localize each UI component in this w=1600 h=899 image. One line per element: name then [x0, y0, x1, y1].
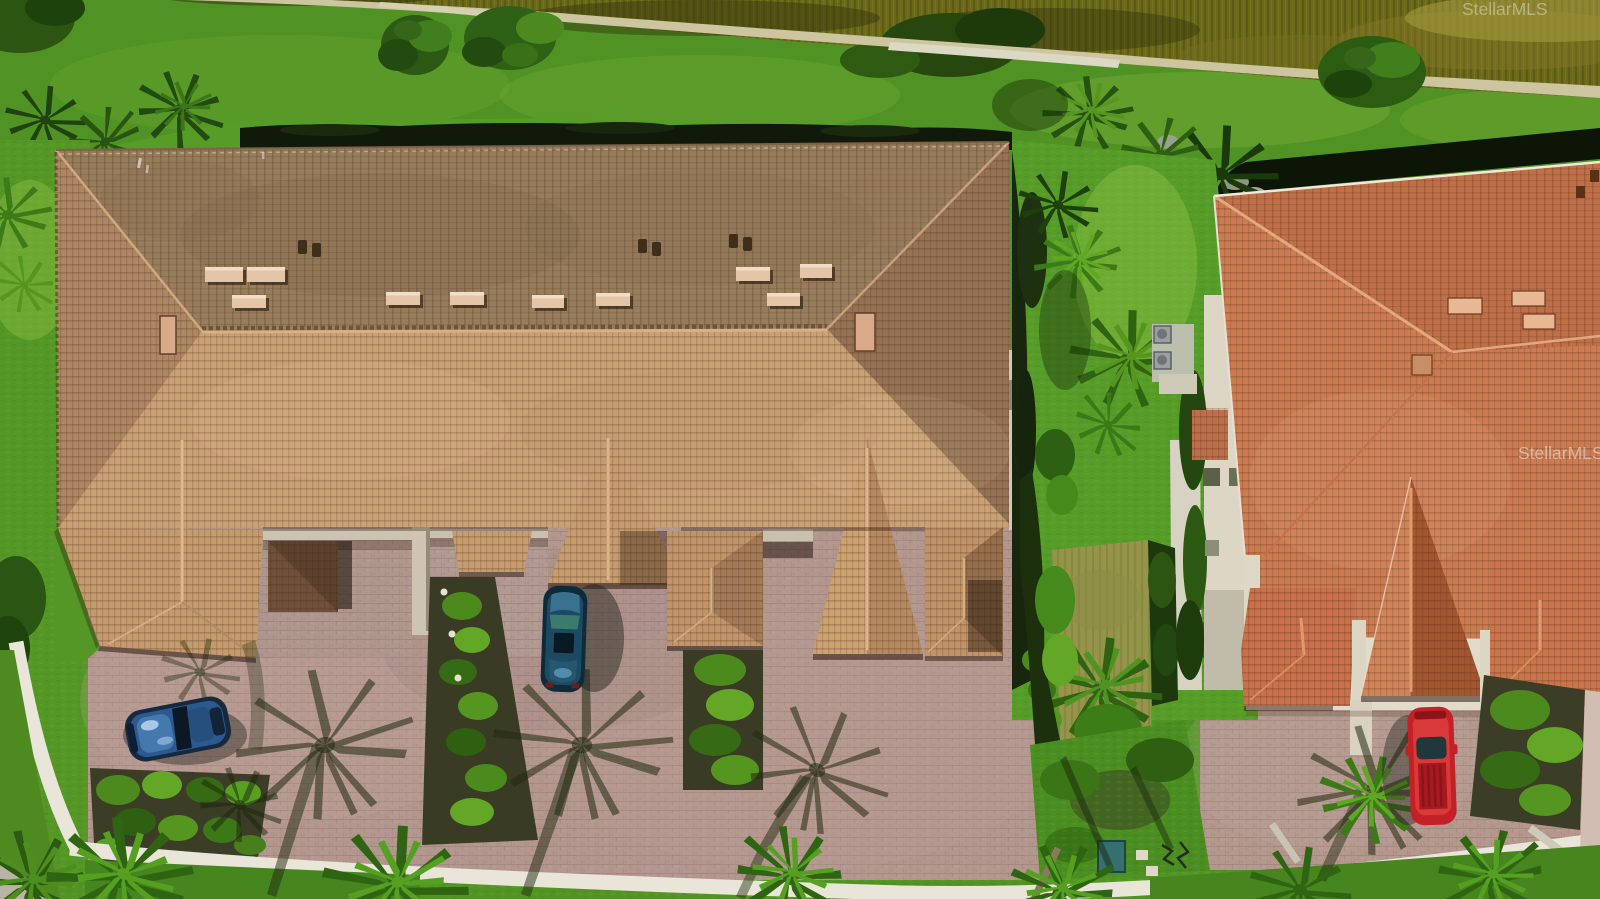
svg-text:StellarMLS: StellarMLS — [1518, 443, 1600, 463]
svg-text:StellarMLS: StellarMLS — [1462, 0, 1548, 19]
